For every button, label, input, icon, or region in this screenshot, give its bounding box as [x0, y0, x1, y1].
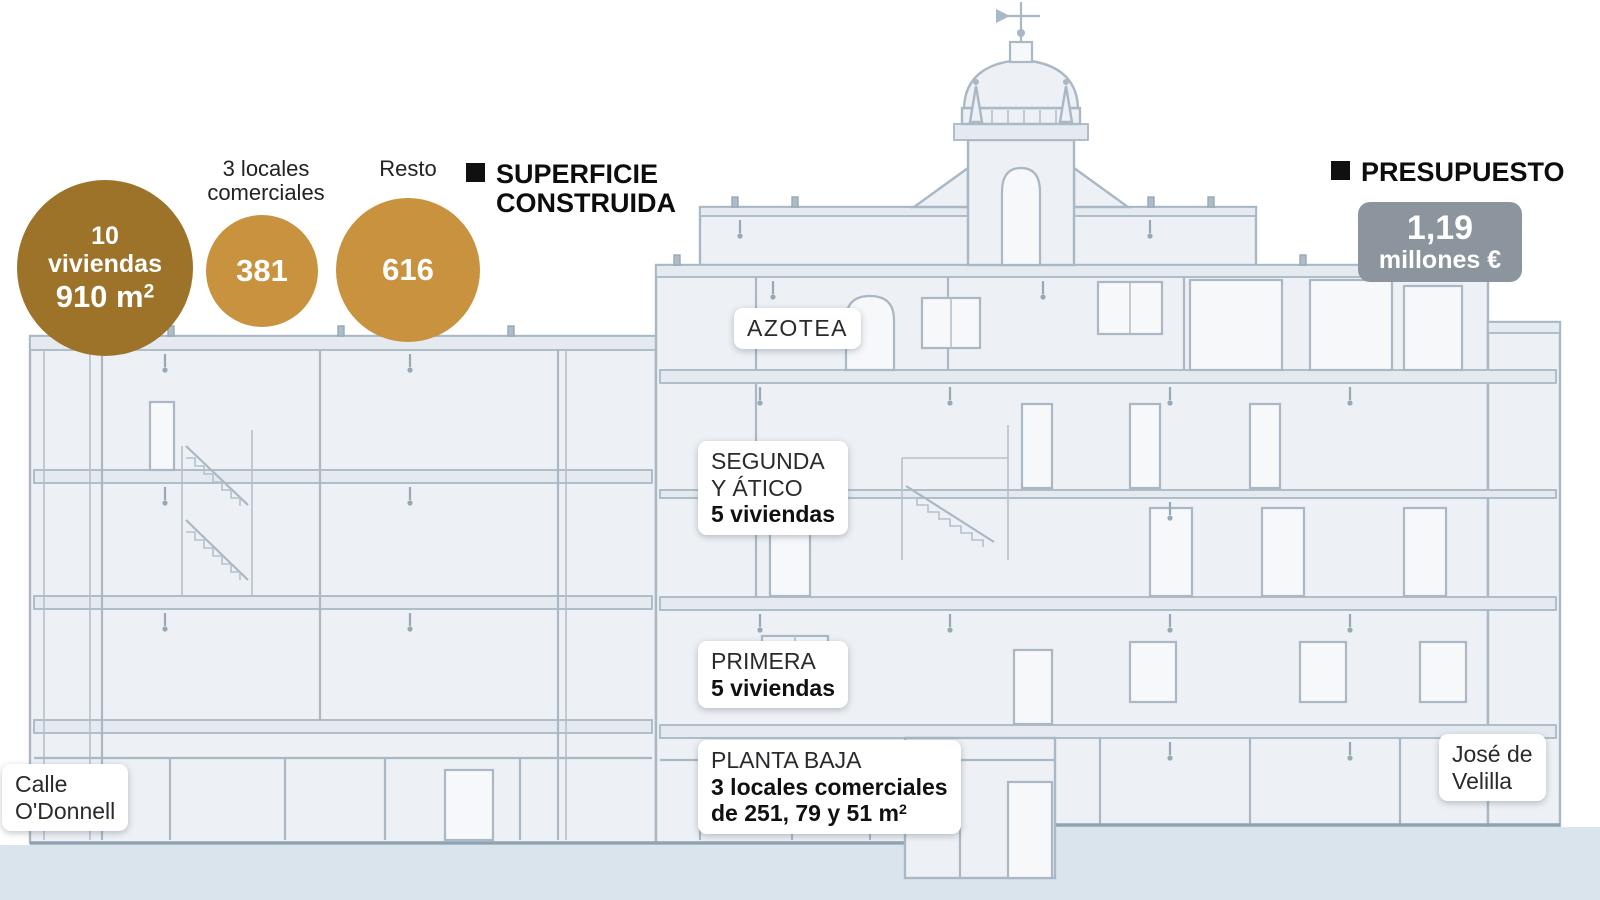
- legend-superficie-line2: CONSTRUIDA: [496, 189, 676, 218]
- black-square-bullet-icon: [1331, 161, 1350, 180]
- bubble-resto-label: Resto: [348, 157, 468, 181]
- bubble-viviendas-area: 910 m2: [56, 280, 155, 315]
- dome: [964, 60, 1078, 108]
- floor-label-segunda-atico: SEGUNDA Y ÁTICO 5 viviendas: [698, 441, 848, 535]
- bubble-viviendas: 10 viviendas 910 m2: [17, 180, 193, 356]
- floor-label-primera: PRIMERA 5 viviendas: [698, 641, 848, 708]
- floor-label-azotea: AZOTEA: [734, 308, 861, 349]
- bubble-locales-label: 3 locales comerciales: [196, 157, 336, 205]
- cross-finial-icon: [996, 2, 1040, 42]
- infographic-canvas: 10 viviendas 910 m2 3 locales comerciale…: [0, 0, 1600, 900]
- legend-superficie: SUPERFICIE CONSTRUIDA: [466, 160, 676, 218]
- black-square-bullet-icon: [466, 163, 485, 182]
- presupuesto-unit: millones €: [1358, 247, 1522, 273]
- bubble-resto-value: 616: [382, 252, 434, 288]
- legend-presupuesto: PRESUPUESTO: [1331, 158, 1565, 187]
- legend-presupuesto-title: PRESUPUESTO: [1361, 158, 1565, 187]
- lantern: [1010, 42, 1032, 62]
- bubble-locales: 381: [206, 215, 318, 327]
- bubble-viviendas-label: viviendas: [48, 250, 162, 278]
- bubble-locales-value: 381: [236, 253, 288, 289]
- street-label-calle-odonnell: Calle O'Donnell: [2, 764, 128, 831]
- presupuesto-badge: 1,19 millones €: [1358, 202, 1522, 282]
- presupuesto-value: 1,19: [1358, 211, 1522, 247]
- floor-label-planta-baja: PLANTA BAJA 3 locales comerciales de 251…: [698, 740, 961, 834]
- bubble-resto: 616: [336, 198, 480, 342]
- street-label-jose-de-velilla: José de Velilla: [1439, 734, 1546, 801]
- bubble-viviendas-count: 10: [91, 222, 119, 250]
- legend-superficie-line1: SUPERFICIE: [496, 160, 676, 189]
